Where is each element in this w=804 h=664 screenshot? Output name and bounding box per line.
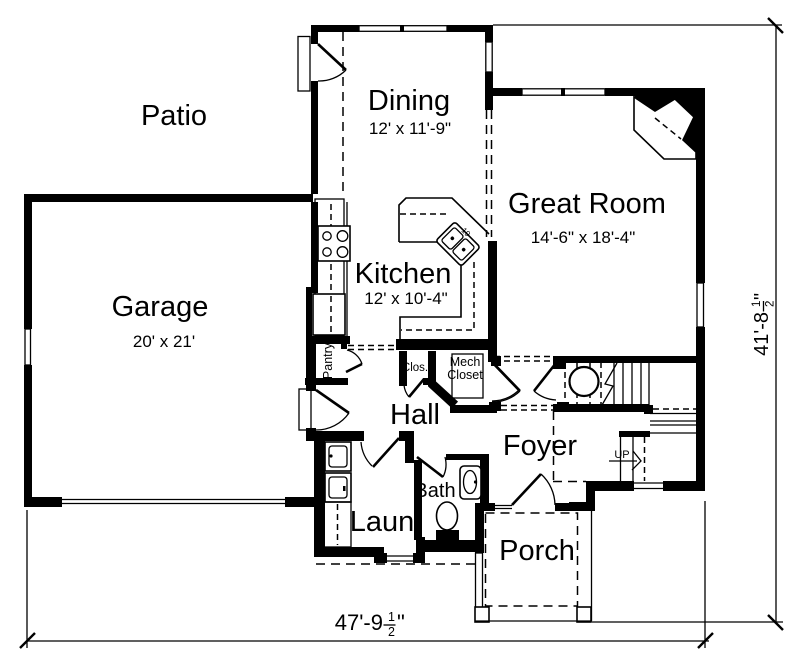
svg-text:47'-9: 47'-9: [335, 610, 383, 635]
svg-text:1: 1: [751, 301, 763, 307]
svg-text:Clos.: Clos.: [402, 362, 428, 374]
svg-text:Great Room: Great Room: [508, 188, 666, 220]
svg-text:Pantry: Pantry: [321, 342, 335, 379]
svg-text:12' x 11'-9": 12' x 11'-9": [369, 119, 451, 138]
svg-text:1: 1: [388, 610, 395, 624]
svg-text:14'-6" x 18'-4": 14'-6" x 18'-4": [531, 228, 636, 247]
svg-text:Porch: Porch: [499, 535, 575, 567]
svg-text:Closet: Closet: [447, 368, 483, 382]
svg-text:Kitchen: Kitchen: [355, 258, 452, 290]
svg-text:UP: UP: [614, 449, 629, 461]
svg-text:20' x 21': 20' x 21': [133, 332, 195, 351]
svg-text:Laun: Laun: [350, 506, 415, 538]
svg-text:Mech: Mech: [450, 355, 481, 369]
svg-text:Patio: Patio: [141, 100, 207, 132]
svg-text:Hall: Hall: [390, 399, 440, 431]
svg-text:Bath: Bath: [414, 480, 455, 502]
svg-text:2: 2: [765, 301, 777, 307]
svg-text:Garage: Garage: [112, 291, 209, 323]
svg-text:": ": [397, 610, 405, 635]
svg-text:2: 2: [388, 625, 395, 639]
svg-text:Dining: Dining: [368, 85, 450, 117]
svg-text:12' x 10'-4": 12' x 10'-4": [364, 289, 447, 308]
svg-text:": ": [751, 293, 773, 300]
svg-text:Foyer: Foyer: [503, 430, 577, 462]
svg-text:41'-8: 41'-8: [751, 312, 773, 356]
